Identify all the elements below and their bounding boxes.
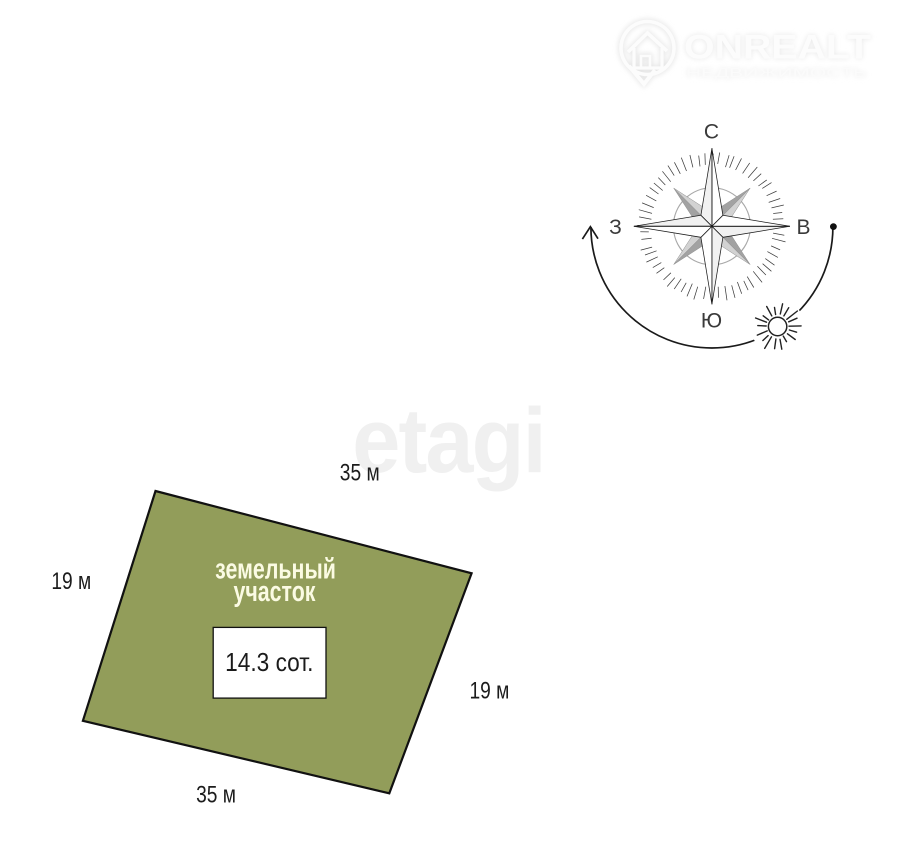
svg-text:Ю: Ю <box>701 310 722 333</box>
svg-text:С: С <box>704 121 719 144</box>
svg-text:НЕДВИЖИМОСТЬ: НЕДВИЖИМОСТЬ <box>686 66 867 80</box>
svg-text:ONREALT: ONREALT <box>684 29 871 67</box>
svg-text:35 м: 35 м <box>340 458 380 486</box>
svg-text:etagi: etagi <box>352 389 544 492</box>
svg-text:В: В <box>796 216 810 239</box>
svg-text:З: З <box>609 216 622 239</box>
svg-text:19 м: 19 м <box>51 567 91 595</box>
svg-text:14.3 сот.: 14.3 сот. <box>225 649 313 678</box>
svg-text:35 м: 35 м <box>196 781 236 809</box>
svg-text:19 м: 19 м <box>469 676 509 704</box>
svg-text:участок: участок <box>233 576 315 608</box>
